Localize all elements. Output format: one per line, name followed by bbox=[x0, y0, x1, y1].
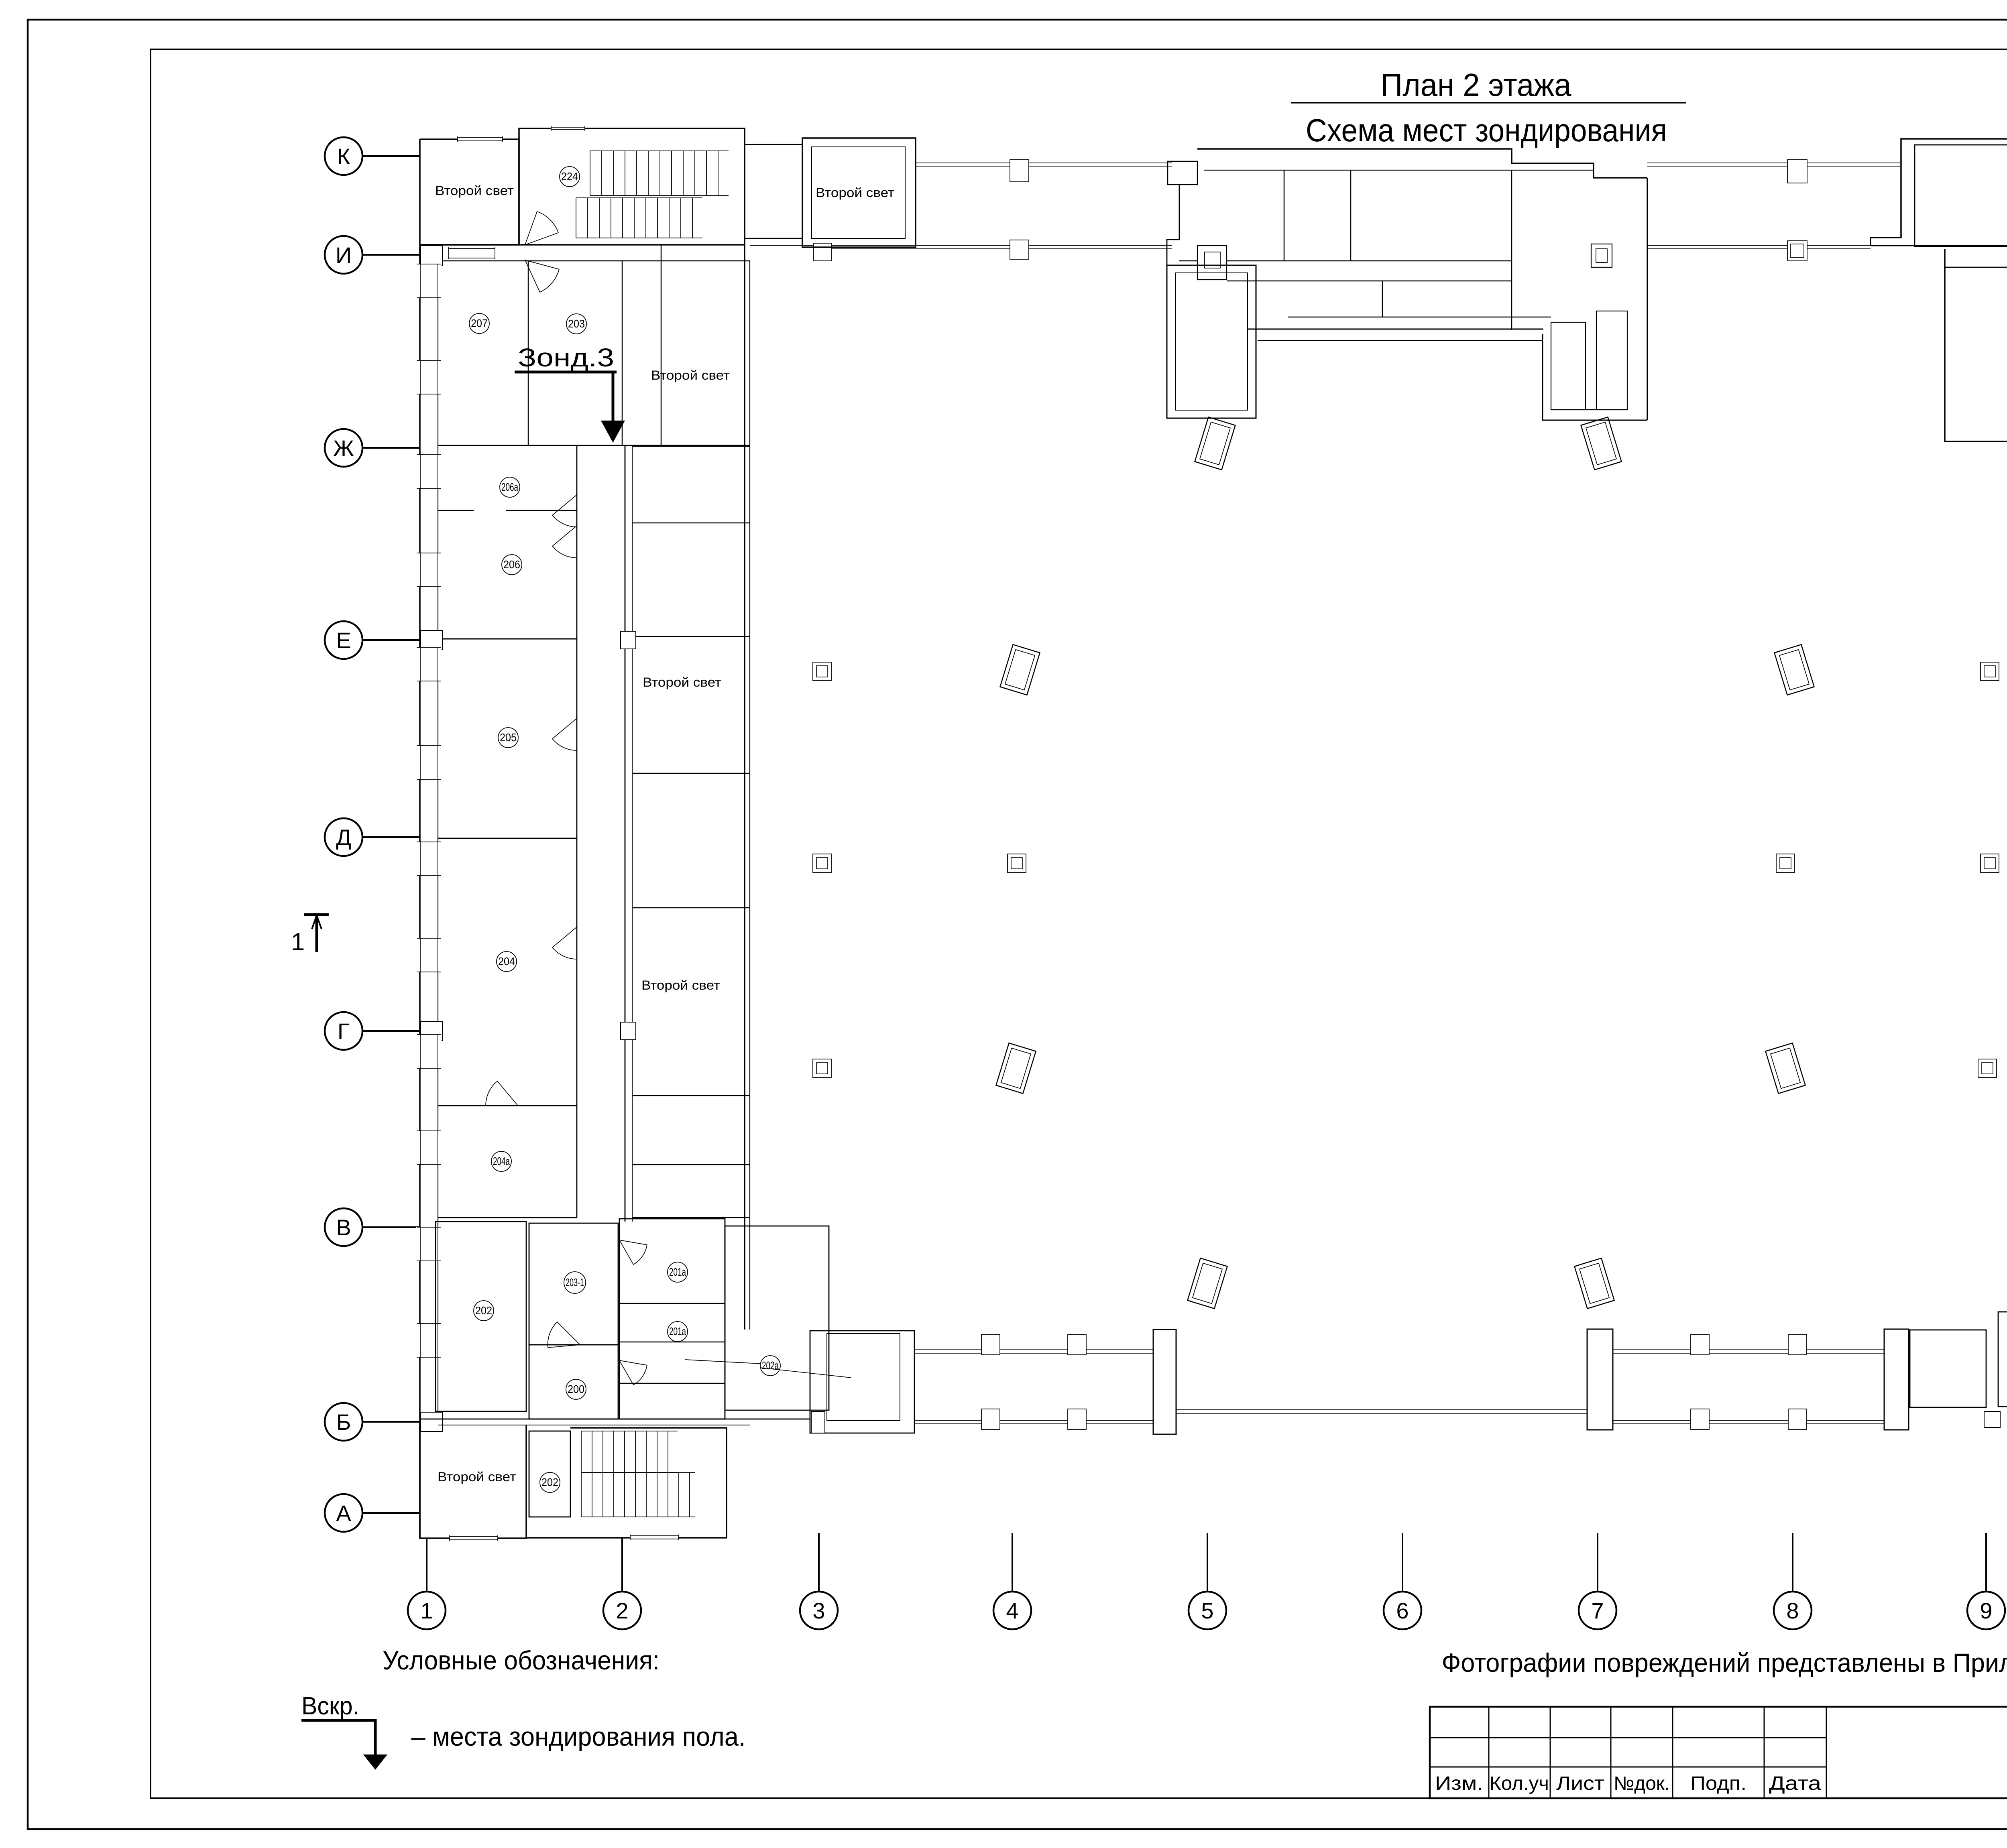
svg-text:203: 203 bbox=[568, 317, 585, 330]
svg-text:Второй свет: Второй свет bbox=[435, 183, 514, 198]
svg-text:А: А bbox=[336, 1500, 351, 1526]
svg-text:Изм.: Изм. bbox=[1435, 1773, 1483, 1794]
svg-text:Второй свет: Второй свет bbox=[816, 185, 894, 200]
svg-text:8: 8 bbox=[1786, 1598, 1799, 1623]
svg-text:205: 205 bbox=[500, 731, 517, 744]
svg-text:Зонд.3: Зонд.3 bbox=[518, 343, 614, 372]
svg-text:1: 1 bbox=[291, 928, 305, 956]
svg-text:9: 9 bbox=[1980, 1598, 1992, 1623]
svg-text:5: 5 bbox=[1201, 1598, 1213, 1623]
svg-text:Вскр.: Вскр. bbox=[301, 1692, 359, 1720]
svg-text:203-1: 203-1 bbox=[566, 1276, 584, 1289]
svg-text:201а: 201а bbox=[669, 1266, 686, 1278]
svg-text:204: 204 bbox=[498, 955, 515, 968]
svg-text:Г: Г bbox=[338, 1019, 350, 1044]
svg-text:Дата: Дата bbox=[1769, 1773, 1821, 1794]
svg-text:224: 224 bbox=[561, 170, 578, 183]
svg-text:Условные обозначения:: Условные обозначения: bbox=[383, 1645, 660, 1675]
svg-text:202: 202 bbox=[475, 1304, 492, 1317]
svg-text:2: 2 bbox=[616, 1598, 628, 1623]
svg-text:1: 1 bbox=[420, 1598, 433, 1623]
svg-text:План 2 этажа: План 2 этажа bbox=[1381, 67, 1571, 103]
svg-text:К: К bbox=[337, 144, 350, 169]
svg-text:204а: 204а bbox=[493, 1155, 510, 1167]
svg-text:– места зондирования пола.: – места зондирования пола. bbox=[411, 1722, 746, 1751]
svg-text:206: 206 bbox=[503, 558, 520, 571]
svg-text:202: 202 bbox=[541, 1476, 558, 1488]
svg-text:6: 6 bbox=[1396, 1598, 1409, 1623]
svg-text:Второй свет: Второй свет bbox=[438, 1470, 516, 1484]
svg-text:Второй свет: Второй свет bbox=[643, 675, 721, 689]
svg-text:Кол.уч: Кол.уч bbox=[1490, 1773, 1549, 1794]
svg-text:200: 200 bbox=[568, 1383, 584, 1395]
svg-text:Е: Е bbox=[336, 628, 351, 653]
svg-text:Ж: Ж bbox=[333, 435, 354, 461]
svg-text:№док.: №док. bbox=[1614, 1773, 1670, 1794]
svg-text:207: 207 bbox=[471, 317, 488, 329]
svg-text:Схема мест зондирования: Схема мест зондирования bbox=[1306, 112, 1667, 148]
svg-text:В: В bbox=[336, 1215, 351, 1240]
svg-text:Подп.: Подп. bbox=[1690, 1773, 1746, 1794]
svg-text:Второй свет: Второй свет bbox=[641, 978, 720, 992]
svg-text:Б: Б bbox=[336, 1409, 351, 1435]
svg-text:Второй свет: Второй свет bbox=[651, 368, 730, 382]
svg-text:201а: 201а bbox=[669, 1325, 686, 1338]
svg-text:Лист: Лист bbox=[1556, 1773, 1604, 1794]
svg-text:3: 3 bbox=[812, 1598, 825, 1623]
svg-text:206а: 206а bbox=[501, 481, 518, 493]
svg-text:7: 7 bbox=[1591, 1598, 1604, 1623]
svg-text:Фотографии повреждений предста: Фотографии повреждений представлены в Пр… bbox=[1442, 1648, 2007, 1677]
svg-text:И: И bbox=[336, 242, 352, 268]
svg-text:4: 4 bbox=[1006, 1598, 1018, 1623]
svg-text:Д: Д bbox=[336, 825, 351, 850]
